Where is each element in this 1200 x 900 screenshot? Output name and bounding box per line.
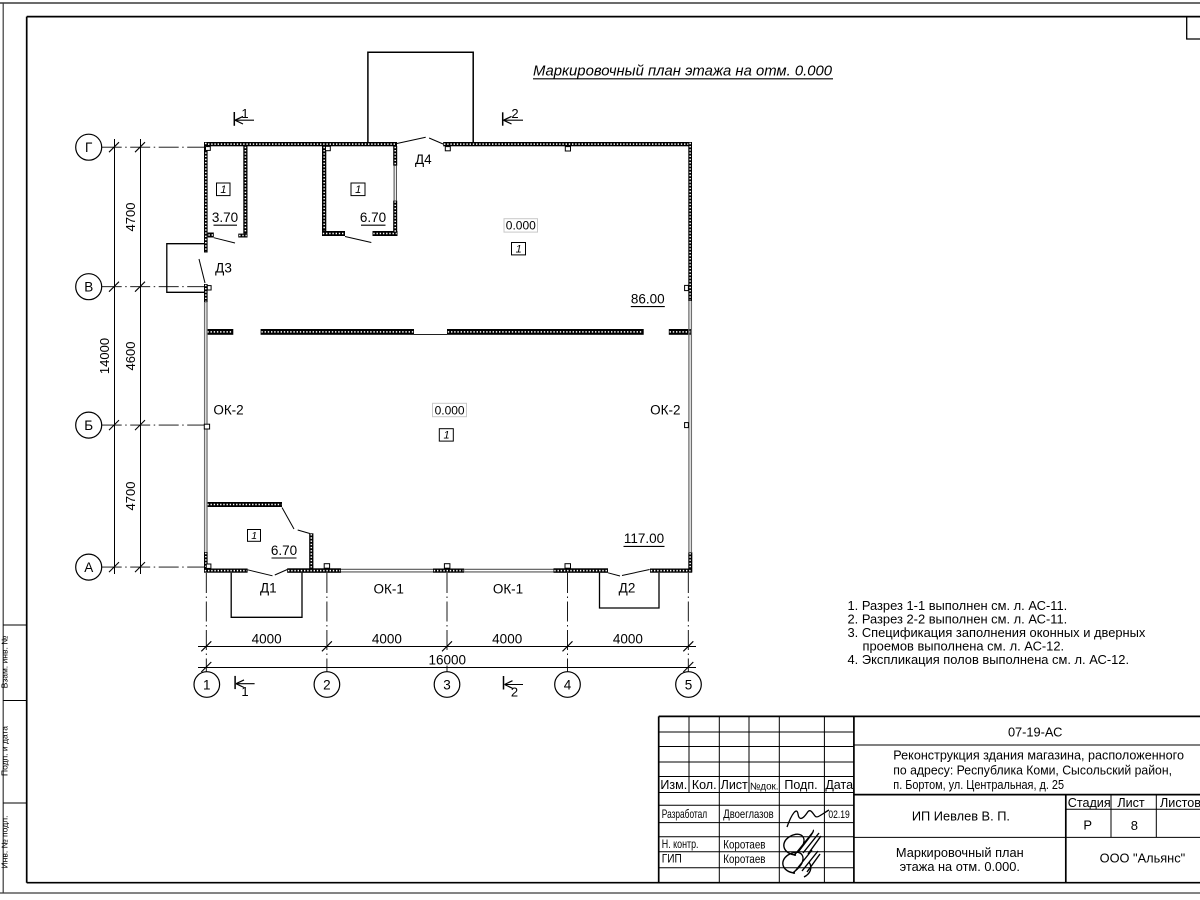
svg-text:4000: 4000 <box>252 632 282 647</box>
svg-text:Стадия: Стадия <box>1068 796 1111 810</box>
svg-text:1: 1 <box>220 184 226 196</box>
svg-text:п. Бортом, ул. Центральная, д.: п. Бортом, ул. Центральная, д. 25 <box>893 778 1064 792</box>
svg-text:16000: 16000 <box>429 652 467 667</box>
svg-text:4700: 4700 <box>123 203 138 232</box>
svg-text:4000: 4000 <box>492 632 522 647</box>
svg-text:4700: 4700 <box>123 482 138 511</box>
svg-text:1: 1 <box>241 684 248 699</box>
svg-text:4. Экспликация полов выполнена: 4. Экспликация полов выполнена см. л. АС… <box>848 652 1130 667</box>
svg-text:14000: 14000 <box>97 338 112 374</box>
svg-text:1: 1 <box>516 244 522 256</box>
svg-text:Кол.: Кол. <box>692 778 717 792</box>
svg-text:07-19-АС: 07-19-АС <box>1008 725 1063 740</box>
svg-text:1: 1 <box>241 106 248 121</box>
svg-text:ИП Иевлев В. П.: ИП Иевлев В. П. <box>912 809 1010 824</box>
svg-text:5: 5 <box>685 677 693 692</box>
svg-text:Д4: Д4 <box>415 152 432 167</box>
svg-text:Двоеглазов: Двоеглазов <box>723 807 773 821</box>
svg-text:1: 1 <box>443 430 449 442</box>
svg-text:6.70: 6.70 <box>360 210 386 225</box>
svg-text:4000: 4000 <box>372 632 402 647</box>
svg-text:4600: 4600 <box>123 342 138 371</box>
svg-text:ГИП: ГИП <box>662 852 682 866</box>
svg-text:0.000: 0.000 <box>435 403 465 417</box>
svg-text:1: 1 <box>203 677 211 692</box>
svg-text:ОК-2: ОК-2 <box>650 403 680 418</box>
svg-text:ОК-1: ОК-1 <box>493 582 523 597</box>
svg-text:№док.: №док. <box>750 782 779 793</box>
svg-text:Коротаев: Коротаев <box>723 837 765 851</box>
svg-text:2: 2 <box>323 677 331 692</box>
svg-text:Коротаев: Коротаев <box>723 852 765 866</box>
svg-text:А: А <box>84 560 93 575</box>
svg-text:02.19: 02.19 <box>828 809 849 821</box>
svg-text:В: В <box>84 280 93 295</box>
svg-text:ОК-2: ОК-2 <box>213 403 243 418</box>
svg-text:Подп. и дата: Подп. и дата <box>0 726 10 776</box>
svg-text:ООО "Альянс": ООО "Альянс" <box>1100 851 1186 866</box>
svg-text:Г: Г <box>85 140 93 155</box>
svg-text:117.00: 117.00 <box>624 531 664 546</box>
svg-text:ОК-1: ОК-1 <box>374 582 404 597</box>
svg-text:8: 8 <box>1131 818 1138 833</box>
svg-text:0.000: 0.000 <box>506 219 536 233</box>
svg-text:Подп.: Подп. <box>784 778 817 792</box>
svg-text:по адресу: Республика Коми, Сы: по адресу: Республика Коми, Сысольский р… <box>893 764 1172 778</box>
svg-text:Маркировочный план этажа на от: Маркировочный план этажа на отм. 0.000 <box>533 63 833 80</box>
svg-text:2: 2 <box>511 685 518 700</box>
svg-text:Лист: Лист <box>1117 796 1145 810</box>
svg-text:3.70: 3.70 <box>212 210 238 225</box>
svg-text:6.70: 6.70 <box>271 543 297 558</box>
svg-text:Р: Р <box>1083 818 1092 833</box>
svg-text:этажа на отм. 0.000.: этажа на отм. 0.000. <box>900 859 1020 874</box>
svg-text:Разработал: Разработал <box>662 807 707 821</box>
svg-text:Лист: Лист <box>721 778 748 792</box>
svg-text:Дата: Дата <box>825 778 853 792</box>
svg-text:86.00: 86.00 <box>631 292 665 307</box>
svg-text:Листов: Листов <box>1160 796 1200 810</box>
svg-text:4: 4 <box>564 677 572 692</box>
svg-text:1: 1 <box>355 184 361 196</box>
svg-text:2: 2 <box>511 106 518 121</box>
svg-text:Реконструкция здания магазина,: Реконструкция здания магазина, расположе… <box>893 749 1184 763</box>
svg-text:Маркировочный план: Маркировочный план <box>896 845 1024 860</box>
svg-text:Д1: Д1 <box>260 581 277 596</box>
svg-text:Д2: Д2 <box>619 581 636 596</box>
svg-text:1: 1 <box>251 530 257 542</box>
svg-text:Н. контр.: Н. контр. <box>662 837 699 851</box>
svg-text:Взам. инв. №: Взам. инв. № <box>0 636 10 689</box>
svg-text:Д3: Д3 <box>215 261 232 276</box>
svg-text:Инв. № подл.: Инв. № подл. <box>0 816 10 869</box>
svg-text:3: 3 <box>443 677 451 692</box>
svg-text:Изм.: Изм. <box>660 778 687 792</box>
svg-text:4000: 4000 <box>613 632 643 647</box>
svg-text:Б: Б <box>84 418 93 433</box>
